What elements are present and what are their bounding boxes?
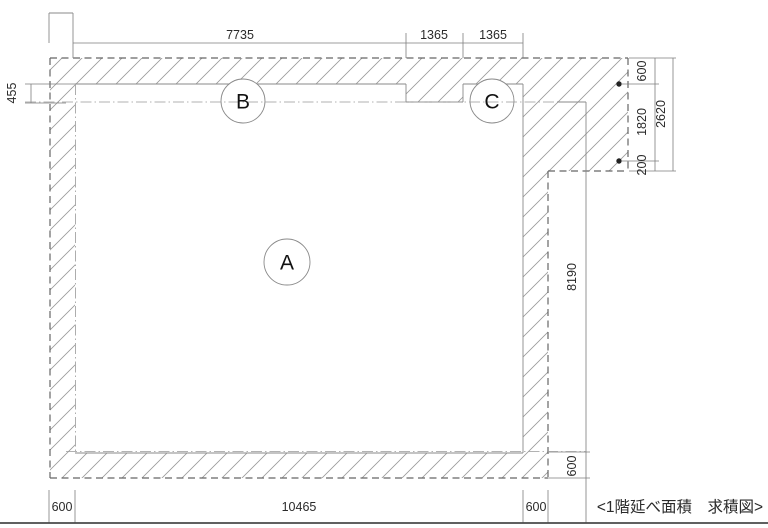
drawing-title: <1階延べ面積 求積図> [597,498,763,516]
dim-top-width-main: 7735 [226,28,254,42]
region-label-c: C [484,91,499,114]
top-left-projection [49,13,73,58]
dim-right-height: 8190 [565,263,579,291]
dim-top-width-seg2: 1365 [479,28,507,42]
survey-dot-lower [616,158,621,163]
region-circles [221,79,514,285]
dim-right-top: 600 [635,61,649,82]
drawing-sheet: 7735 1365 1365 455 600 1820 200 2620 819… [0,0,768,528]
dim-bottom-right-wall: 600 [526,500,547,514]
dim-right-total: 2620 [654,100,668,128]
dim-right-bottom-wall: 600 [565,456,579,477]
region-label-b: B [236,91,250,114]
dim-top-width-seg1: 1365 [420,28,448,42]
dim-bottom-width: 10465 [282,500,317,514]
dim-right-mid: 1820 [635,108,649,136]
dim-left-overhang: 455 [5,83,19,104]
survey-dot-upper [616,81,621,86]
wall-hatch-band [50,58,628,478]
area-calculation-drawing: 7735 1365 1365 455 600 1820 200 2620 819… [0,0,768,528]
dim-bottom-left-wall: 600 [52,500,73,514]
region-label-a: A [280,252,294,275]
dim-right-small: 200 [635,155,649,176]
